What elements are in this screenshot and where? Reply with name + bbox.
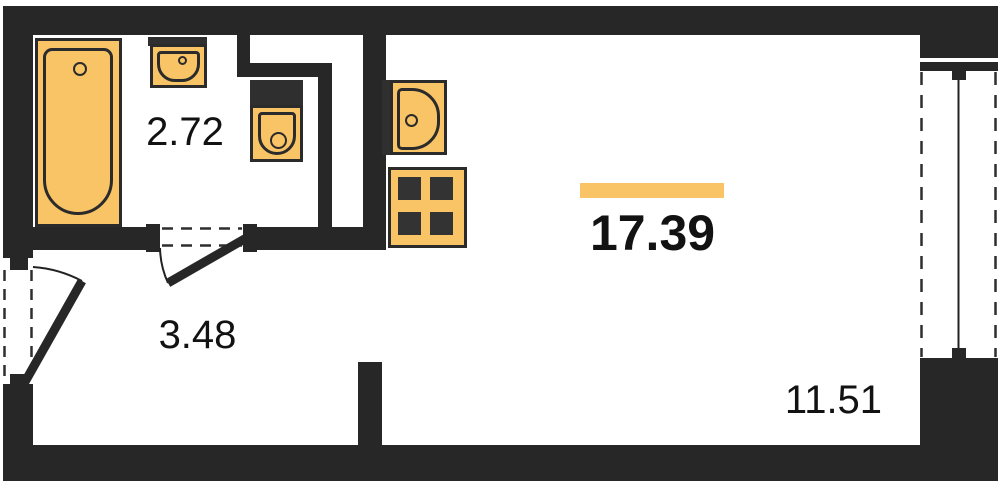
- washbasin-icon: [150, 44, 207, 88]
- window-tab-bottom: [952, 348, 966, 358]
- wall-duct-top: [237, 63, 332, 77]
- entrance-door-icon: [5, 267, 83, 389]
- area-label-bathroom: 2.72: [130, 111, 240, 153]
- wall-bathroom-bottom-right: [257, 227, 386, 250]
- wall-top: [3, 6, 920, 35]
- kitchen-sink-tap: [405, 114, 418, 127]
- bathroom-door-post-right: [243, 224, 257, 252]
- washbasin-tap: [178, 56, 187, 65]
- window-sill-bottom: [920, 358, 998, 368]
- area-label-hallway: 3.48: [140, 314, 255, 356]
- wall-stub-bottom: [358, 362, 382, 445]
- wall-duct-connector: [237, 35, 250, 63]
- wall-bathroom-bottom-left: [33, 227, 148, 250]
- area-label-balcony: 11.51: [766, 379, 901, 421]
- stove-burner: [430, 212, 453, 235]
- window-icon: [922, 72, 996, 357]
- bathtub-icon: [35, 38, 122, 227]
- stove-burner: [430, 177, 453, 200]
- wall-corner-top-right: [920, 6, 998, 58]
- entrance-jamb-top-tab: [10, 258, 28, 270]
- stove-burner: [398, 212, 421, 235]
- bathtub-drain: [73, 62, 87, 76]
- toilet-drain: [270, 132, 287, 149]
- toilet-icon: [250, 105, 303, 162]
- bathroom-door-post-left: [146, 224, 160, 252]
- stove-icon: [388, 167, 467, 248]
- kitchen-sink-icon: [390, 80, 447, 155]
- washbasin-bowl-outline: [157, 51, 200, 82]
- kitchen-sink-basin-outline: [397, 88, 440, 150]
- floor-plan: 2.72 3.48 17.39 11.51: [0, 0, 1000, 484]
- wall-left-upper: [3, 6, 33, 258]
- wall-duct-right: [318, 77, 332, 227]
- living-room-accent-bar: [580, 183, 724, 198]
- wall-bottom: [3, 445, 998, 481]
- area-label-living-room: 17.39: [570, 207, 735, 260]
- bathroom-door-icon: [160, 229, 248, 284]
- wall-corner-bottom-right: [920, 368, 998, 450]
- window-tab-top: [952, 70, 966, 80]
- stove-burner: [398, 177, 421, 200]
- toilet-tank: [250, 80, 303, 107]
